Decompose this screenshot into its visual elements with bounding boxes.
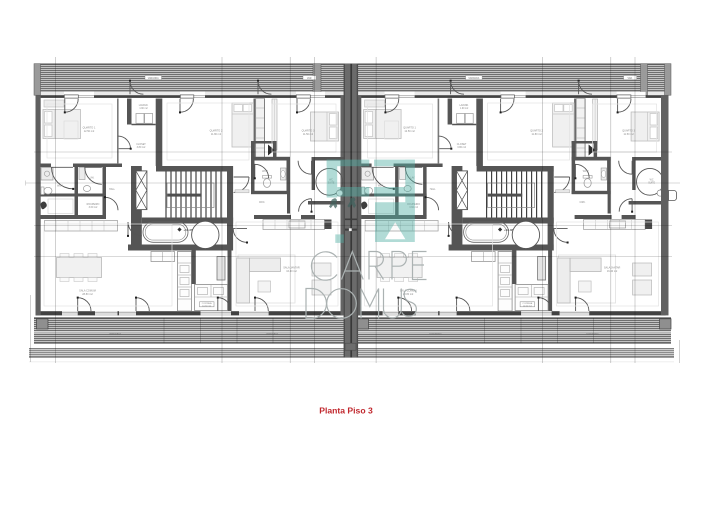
svg-text:VARANDA: VARANDA [586,332,599,336]
svg-text:Planta Piso 3: Planta Piso 3 [319,406,373,416]
svg-text:1.90 m2: 1.90 m2 [139,108,148,110]
svg-text:WC 1: WC 1 [57,186,63,188]
svg-text:11.50 m2: 11.50 m2 [303,133,314,136]
svg-text:16.40 m2: 16.40 m2 [286,270,297,273]
svg-text:3.80 m2: 3.80 m2 [137,146,146,149]
svg-text:12.50 m2: 12.50 m2 [84,130,95,133]
svg-text:CIRC.: CIRC. [259,202,266,204]
svg-text:11.80 m2: 11.80 m2 [211,133,222,136]
svg-text:VARANDA: VARANDA [266,332,279,336]
svg-text:10.50 m2: 10.50 m2 [202,305,212,307]
svg-text:+10.36: +10.36 [183,228,193,232]
svg-text:HALL: HALL [109,188,115,191]
svg-text:28.80 m2: 28.80 m2 [82,293,93,296]
svg-text:WC 2: WC 2 [262,171,268,173]
svg-text:VAR.: VAR. [307,77,313,80]
svg-text:VARANDA: VARANDA [468,77,479,80]
svg-text:3.60 m2: 3.60 m2 [89,206,98,209]
svg-text:VARANDA: VARANDA [429,332,442,336]
svg-text:LAV.: LAV. [90,177,95,180]
svg-text:VARANDA: VARANDA [148,77,159,80]
svg-text:LAVAND.: LAVAND. [139,104,149,107]
svg-text:VARANDA: VARANDA [109,332,122,336]
svg-text:VAR.: VAR. [627,77,633,80]
